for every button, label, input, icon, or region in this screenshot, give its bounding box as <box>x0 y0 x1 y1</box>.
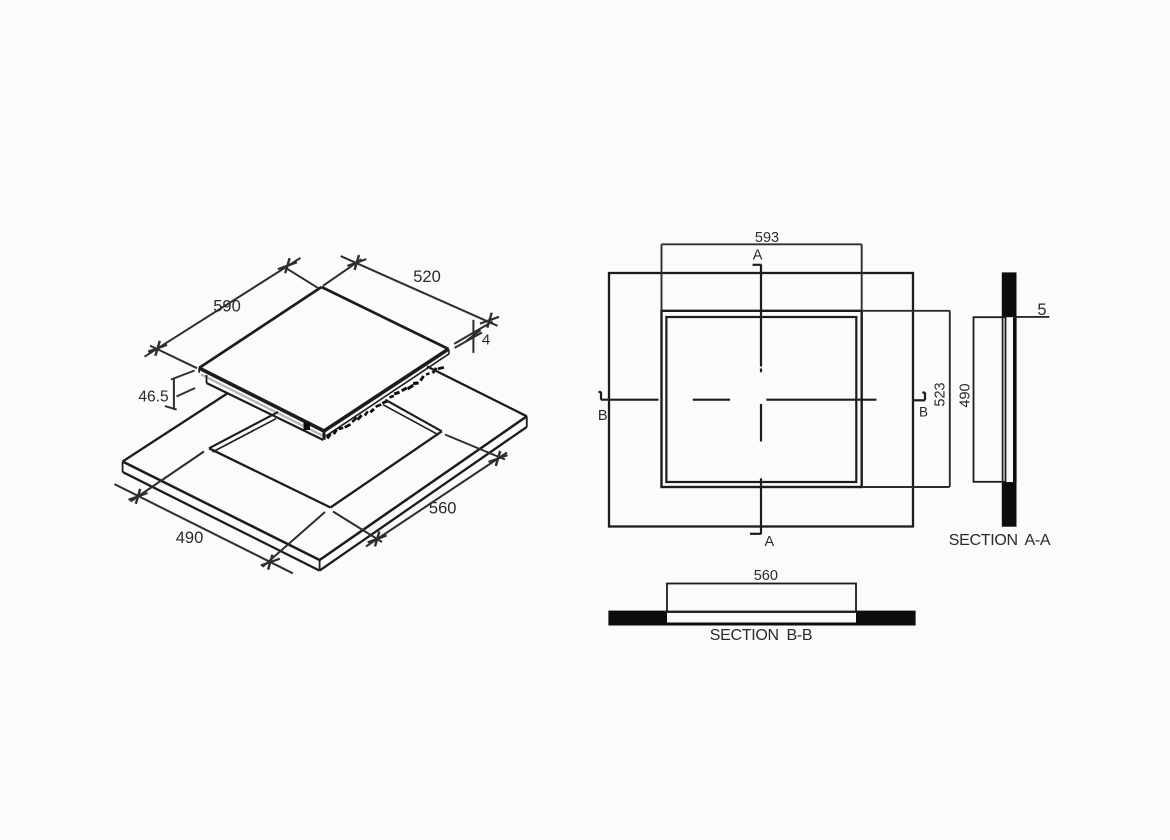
svg-text:A: A <box>753 248 763 264</box>
svg-text:B: B <box>919 405 928 420</box>
svg-text:560: 560 <box>754 568 778 584</box>
svg-text:46.5: 46.5 <box>138 389 168 406</box>
svg-text:A: A <box>764 534 774 550</box>
svg-text:SECTION B-B: SECTION B-B <box>710 627 812 644</box>
svg-text:4: 4 <box>482 332 490 349</box>
svg-text:490: 490 <box>958 383 974 407</box>
svg-text:590: 590 <box>213 298 241 316</box>
svg-text:B: B <box>598 408 608 424</box>
svg-text:520: 520 <box>413 268 441 286</box>
svg-text:523: 523 <box>933 382 949 406</box>
svg-text:593: 593 <box>755 230 779 246</box>
svg-text:490: 490 <box>176 529 204 547</box>
svg-text:SECTION A-A: SECTION A-A <box>949 532 1051 549</box>
svg-text:560: 560 <box>429 500 457 518</box>
svg-text:5: 5 <box>1037 301 1046 319</box>
